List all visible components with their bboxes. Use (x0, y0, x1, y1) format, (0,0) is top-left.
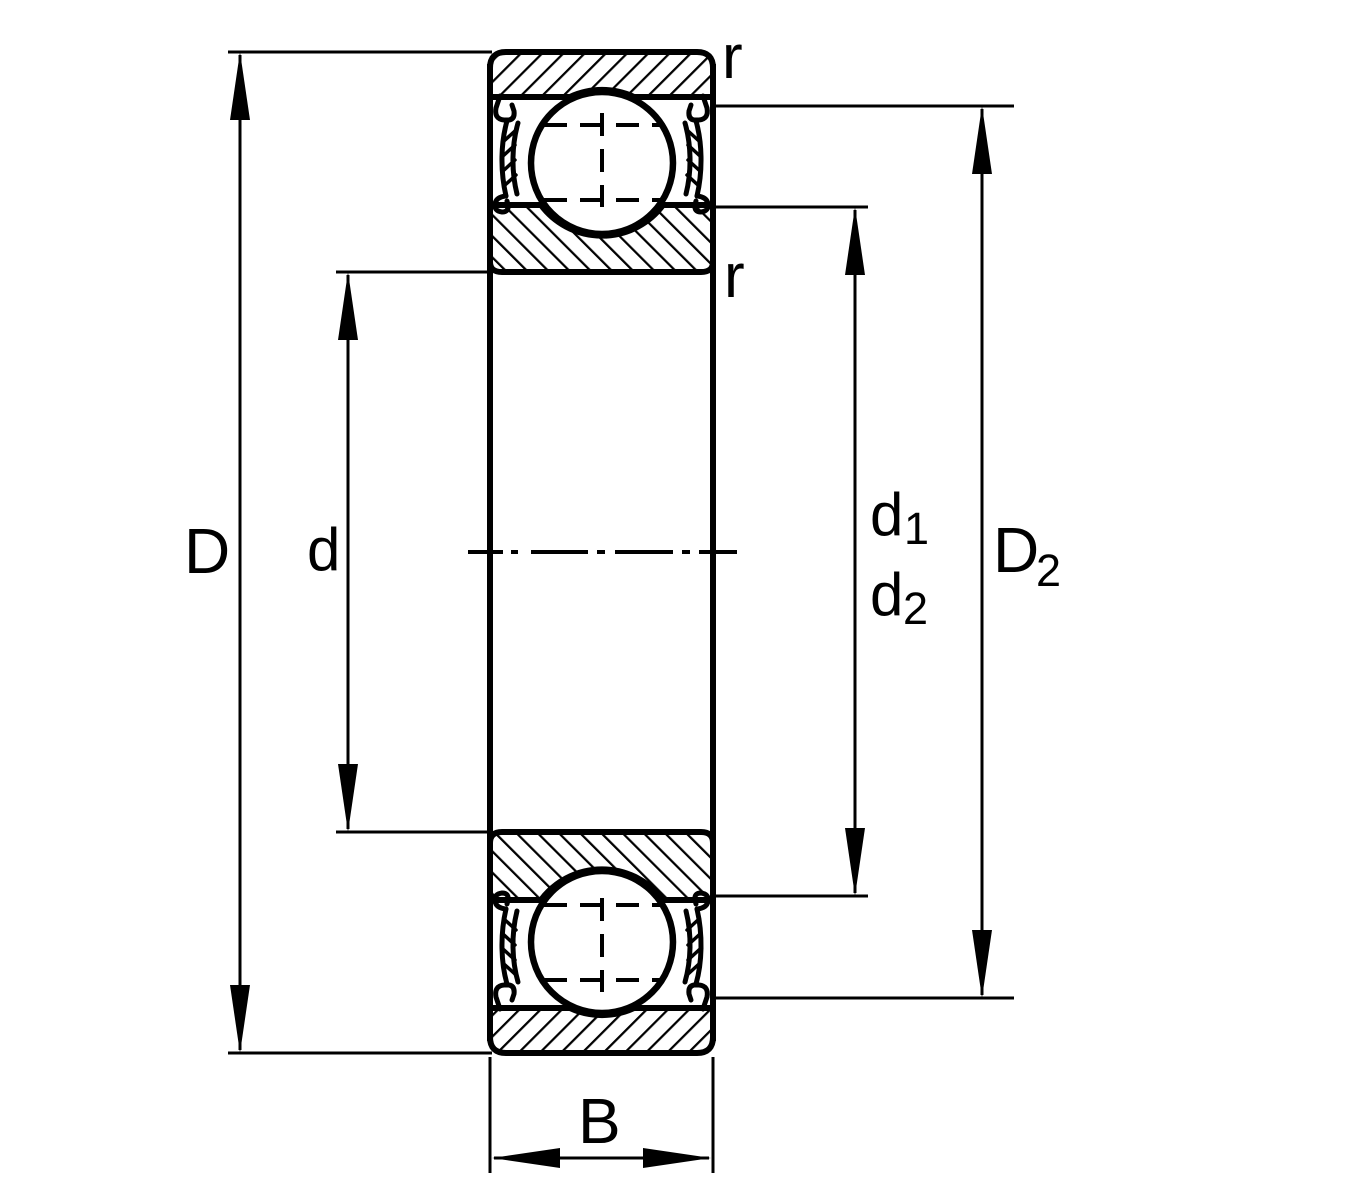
technical-drawing-page: D d d 1 d 2 D 2 (0, 0, 1350, 1200)
arrow-down-icon (230, 985, 250, 1053)
bearing-body (468, 52, 737, 1053)
arrow-up-icon (230, 52, 250, 120)
dimension-D2: D 2 (714, 106, 1061, 998)
dimension-d: d (307, 272, 490, 832)
bottom-section (490, 832, 713, 1053)
chamfer-labels: r r (722, 23, 745, 311)
arrow-down-icon (845, 828, 865, 896)
arrow-up-icon (972, 106, 992, 174)
arrow-left-icon (492, 1148, 560, 1168)
label-B: B (578, 1085, 621, 1157)
label-d: d (307, 516, 340, 583)
arrow-down-icon (972, 930, 992, 998)
label-D: D (184, 515, 230, 587)
bearing-cross-section-drawing: D d d 1 d 2 D 2 (0, 0, 1350, 1200)
label-d2: d 2 (870, 561, 928, 634)
arrow-up-icon (845, 207, 865, 275)
label-r-inner: r (724, 242, 745, 311)
arrow-down-icon (338, 764, 358, 832)
arrow-up-icon (338, 272, 358, 340)
shield-top-left (495, 96, 518, 212)
arrow-right-icon (643, 1148, 711, 1168)
dimension-B: B (490, 1057, 713, 1173)
label-d1: d 1 (870, 481, 929, 554)
top-section (490, 52, 713, 272)
shield-top-right (685, 96, 708, 212)
label-r-outer: r (722, 23, 743, 92)
label-D2: D 2 (993, 514, 1061, 596)
shield-bottom-left (495, 893, 518, 1009)
dimension-d1-d2: d 1 d 2 (714, 207, 929, 896)
shield-bottom-right (685, 893, 708, 1009)
